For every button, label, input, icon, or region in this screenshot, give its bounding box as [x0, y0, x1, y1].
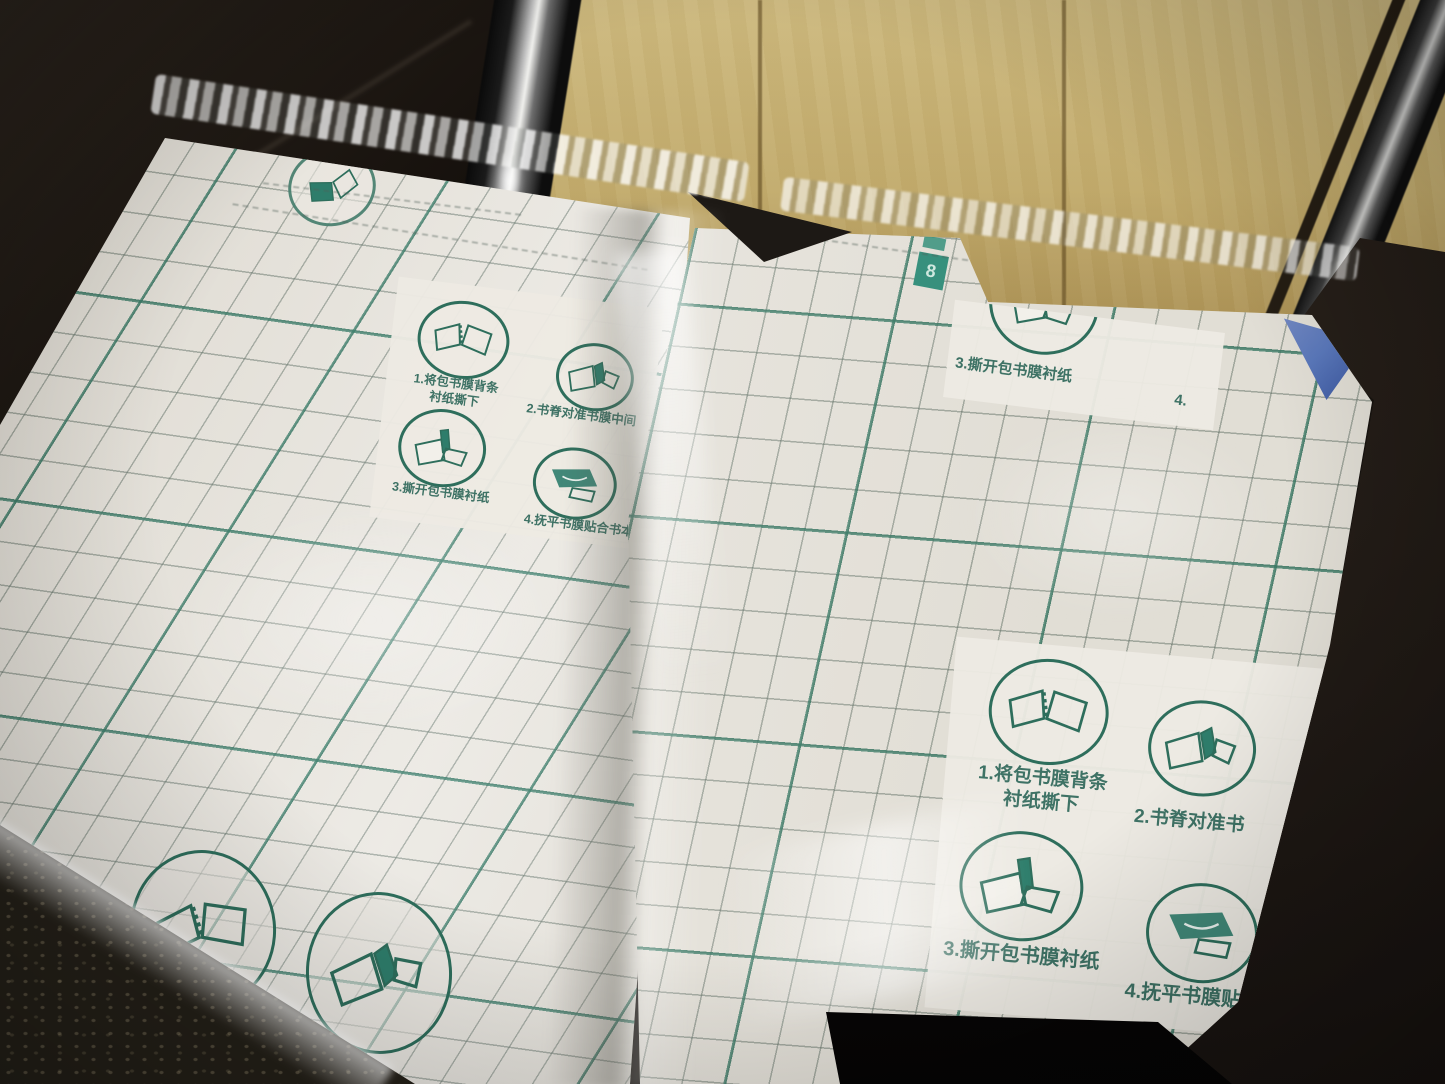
instruction-circle	[984, 654, 1113, 770]
step-label: 1.将包书膜背条 衬纸撕下	[960, 760, 1124, 821]
open-film-icon	[1002, 678, 1095, 745]
wood-panel-seam	[1062, 0, 1066, 345]
step-label: 3.撕开包书膜衬纸	[954, 354, 1073, 387]
spine-align-icon	[1160, 717, 1245, 780]
instruction-circle	[394, 404, 491, 492]
peel-liner-icon	[973, 850, 1070, 922]
step-label: 1.将包书膜背条 衬纸撕下	[394, 369, 517, 415]
open-film-icon	[429, 314, 498, 365]
peel-liner-icon	[409, 424, 476, 473]
photo-stage: 1.将包书膜背条 衬纸撕下 2.书脊对准书膜中间 3.撕开包书膜衬纸	[0, 0, 1445, 1084]
smooth-film-icon	[1158, 901, 1247, 966]
instruction-circle	[413, 296, 514, 385]
center-fold-shadow	[545, 208, 726, 1084]
size-marker-label: 8	[924, 260, 938, 283]
instruction-circle	[1144, 696, 1260, 801]
instruction-circle	[1142, 878, 1262, 987]
spine-align-icon	[325, 933, 434, 1012]
instruction-circle	[955, 826, 1088, 946]
step-label: 4.	[1173, 391, 1188, 411]
step-label: 2.书脊对准书	[1133, 805, 1304, 843]
step-label: 3.撕开包书膜衬纸	[931, 936, 1112, 977]
